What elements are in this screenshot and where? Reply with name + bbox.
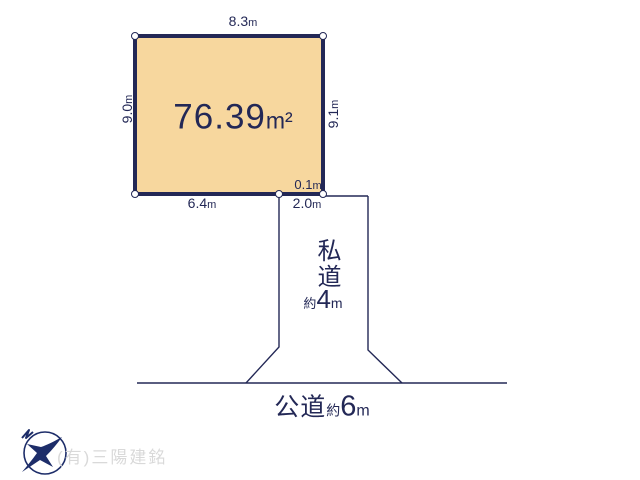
- public-road-width-unit: m: [356, 403, 369, 420]
- public-road-width-value: 6: [340, 391, 356, 423]
- dim-bottom: 6.4m: [188, 196, 217, 212]
- dim-right-unit: m: [329, 100, 341, 109]
- private-road-right-edge: [368, 196, 402, 383]
- area-value: 76.39: [173, 98, 266, 137]
- private-road-label: 私道: [314, 238, 338, 290]
- private-road-approx: 約: [303, 296, 316, 311]
- corner-marker-bottom-left: [131, 190, 139, 198]
- dim-right-value: 9.1: [325, 109, 341, 128]
- dim-bottom-value: 6.4: [188, 195, 207, 211]
- dim-frontage-unit: m: [312, 199, 321, 211]
- dim-top-value: 8.3: [229, 13, 248, 29]
- public-road-approx: 約: [326, 403, 340, 419]
- dim-bottom-unit: m: [207, 199, 216, 211]
- boundary-junction-marker: [275, 190, 283, 198]
- private-road-width-value: 4: [316, 284, 330, 314]
- public-road-name: 公道: [274, 394, 326, 422]
- dim-frontage-value: 2.0: [293, 195, 312, 211]
- area-unit: m²: [266, 108, 293, 134]
- dim-offset: 0.1m: [294, 177, 321, 193]
- dim-frontage: 2.0m: [293, 196, 322, 212]
- dim-top: 8.3m: [229, 14, 258, 30]
- land-plot-diagram: 76.39m² 8.3m 9.0m 9.1m 6.4m 0.1m 2.0m 私道…: [0, 0, 640, 480]
- corner-marker-bottom-right: [319, 190, 327, 198]
- dim-offset-value: 0.1: [294, 177, 312, 192]
- dim-left: 9.0m: [120, 95, 136, 124]
- area-label: 76.39m²: [173, 100, 292, 135]
- company-watermark: (有)三陽建銘: [57, 448, 167, 468]
- public-road-label: 公道約6m: [274, 393, 369, 422]
- bird-glyph: [22, 437, 62, 472]
- private-road-width-unit: m: [331, 295, 343, 311]
- dim-right: 9.1m: [326, 100, 342, 129]
- private-road-left-edge: [246, 196, 279, 383]
- dim-left-value: 9.0: [119, 104, 135, 123]
- dim-left-unit: m: [123, 95, 135, 104]
- corner-marker-top-left: [131, 32, 139, 40]
- corner-marker-top-right: [319, 32, 327, 40]
- dim-top-unit: m: [248, 17, 257, 29]
- private-road-width-label: 約4m: [303, 286, 342, 312]
